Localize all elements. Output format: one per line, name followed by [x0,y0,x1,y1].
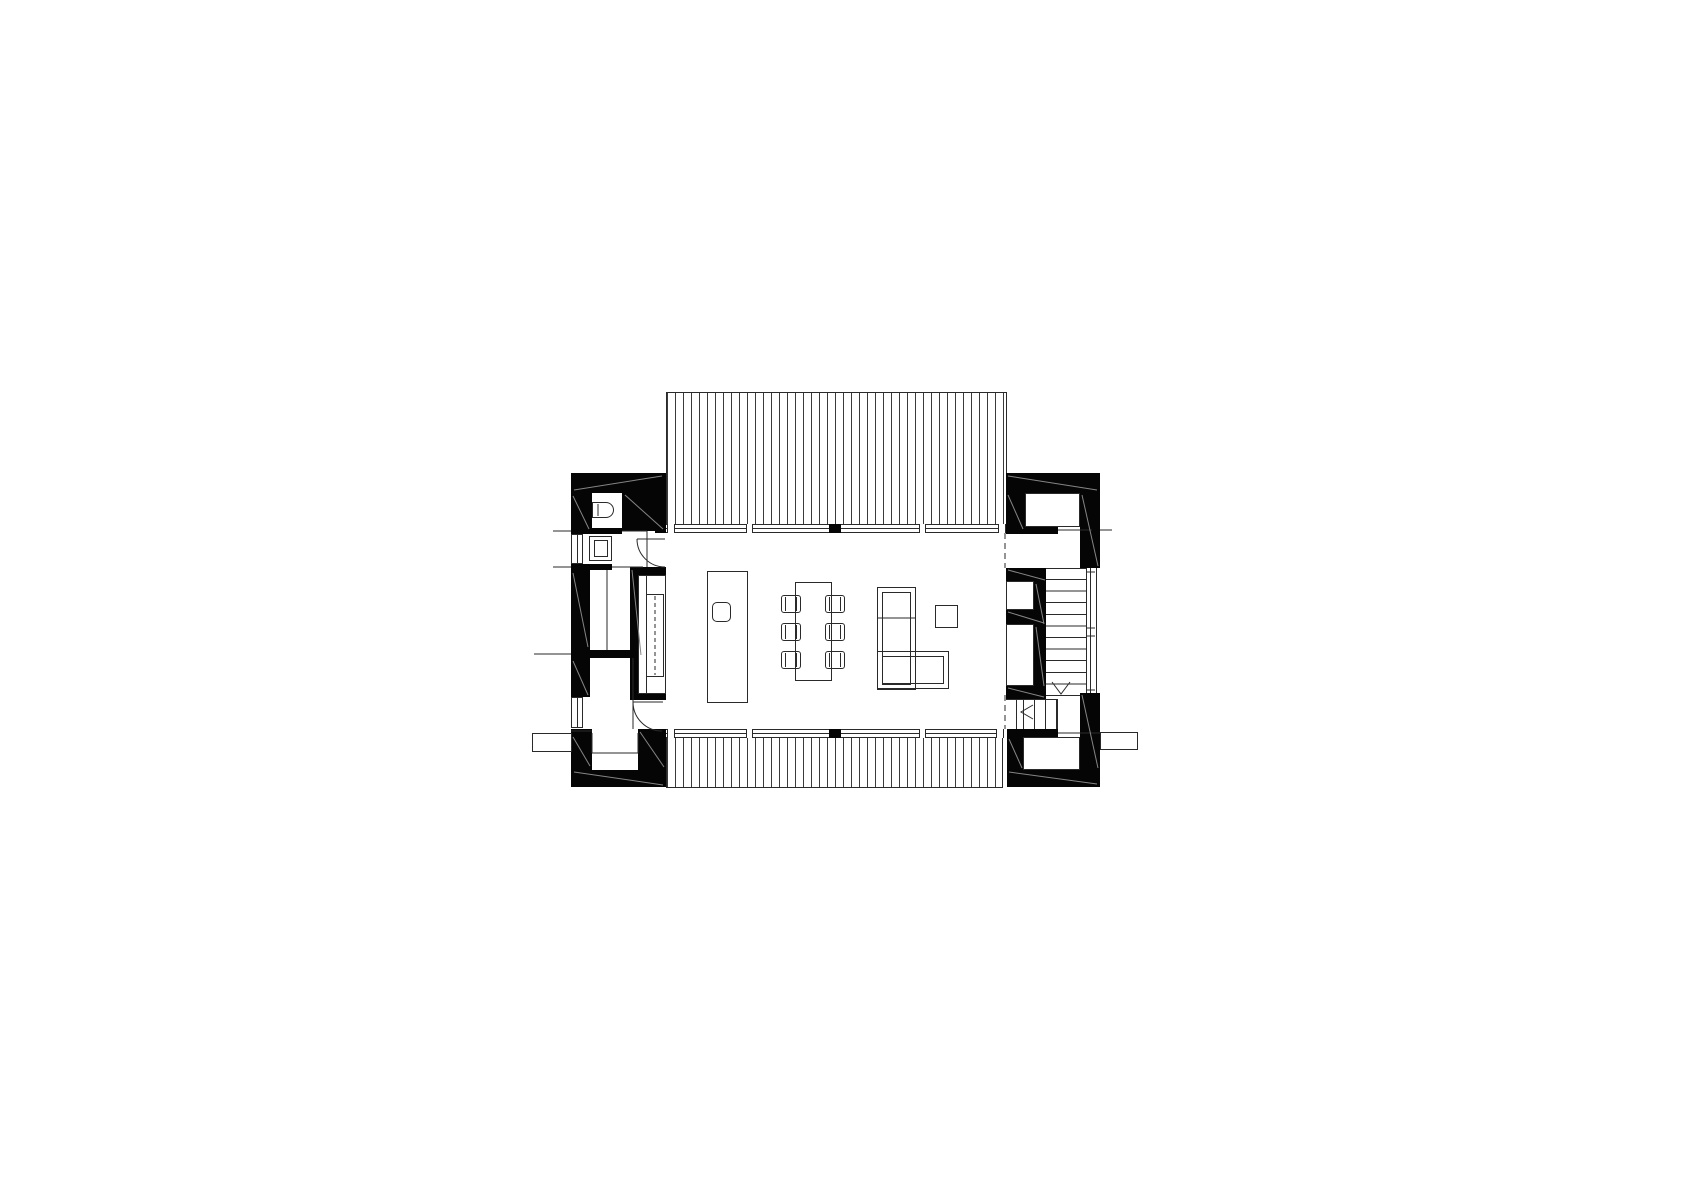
door-swing-arc-north [637,539,665,567]
kitchen-island [707,571,748,703]
stair-wall-block-b [1034,624,1046,688]
wall-bottom-left-band [571,770,666,787]
wall-bottom-right-band [1007,770,1100,787]
window-mullion [746,729,753,738]
window-end-post [998,524,1006,533]
wall-bottom-left-column [571,729,592,770]
wall-west-lower [571,658,590,697]
dining-chair [825,651,845,669]
floor-plan-canvas [0,0,1684,1190]
wall-wc-right-chunk [622,493,666,531]
upper-right-room [1025,493,1080,527]
staircase-lower-flight [1006,699,1058,731]
wall-left-column [571,493,592,531]
dining-chair [781,595,801,613]
staircase-upper-flight [1046,568,1087,696]
side-table [935,605,958,628]
wall-top-right-band [1006,473,1100,493]
door-swing-arc-south [633,702,662,731]
sofa-chaise-inner [882,656,944,684]
store-ledge [1007,729,1058,737]
wall-west-mid [571,570,590,650]
glazing-line [577,698,578,727]
dining-chair [825,623,845,641]
east-wing-stub [1100,732,1138,750]
chair-inner [785,653,797,667]
window-end-post [667,524,675,533]
glazing-line [577,535,578,563]
upper-deck-terrace [666,392,1007,525]
window-center-mullion-block [829,524,841,533]
window-west-upper [571,534,583,564]
wall-bottom-left-chunk [638,729,666,770]
stair-wall-band-b [1006,610,1046,624]
stair-wall-band-c [1006,686,1046,699]
washbasin-inner [594,540,608,557]
wall-east-upper [1080,493,1100,568]
window-end-post [996,729,1004,738]
window-mullion [919,729,926,738]
glazing-double-line [1090,568,1097,696]
west-wing-stub [532,733,572,752]
window-end-post [667,729,675,738]
dining-chair [781,623,801,641]
wall-stairhall-chunk [1006,493,1025,531]
chair-inner [829,653,841,667]
stair-wall-pocket-b [1006,624,1034,686]
wall-top-left-band [571,473,666,493]
kitchen-counter-inner [646,594,664,677]
stairhall-ledge [1006,527,1058,534]
wall-store-chunk [1007,737,1023,770]
stair-window-strip [1086,568,1095,696]
window-center-mullion-block [829,729,841,738]
chair-inner [829,625,841,639]
window-mullion [746,524,753,533]
lower-right-room [1023,737,1080,770]
chair-inner [785,597,797,611]
dining-chair [781,651,801,669]
chair-inner [785,625,797,639]
kitchen-wall-cap-top [630,567,666,575]
dining-chair [825,595,845,613]
lower-deck-terrace [666,737,1003,788]
island-sink [712,602,731,622]
toilet [592,502,614,518]
chair-inner [829,597,841,611]
stair-wall-band-a [1006,568,1046,581]
window-west-lower [571,697,583,728]
stair-wall-pocket-a [1006,581,1034,610]
window-mullion [919,524,926,533]
